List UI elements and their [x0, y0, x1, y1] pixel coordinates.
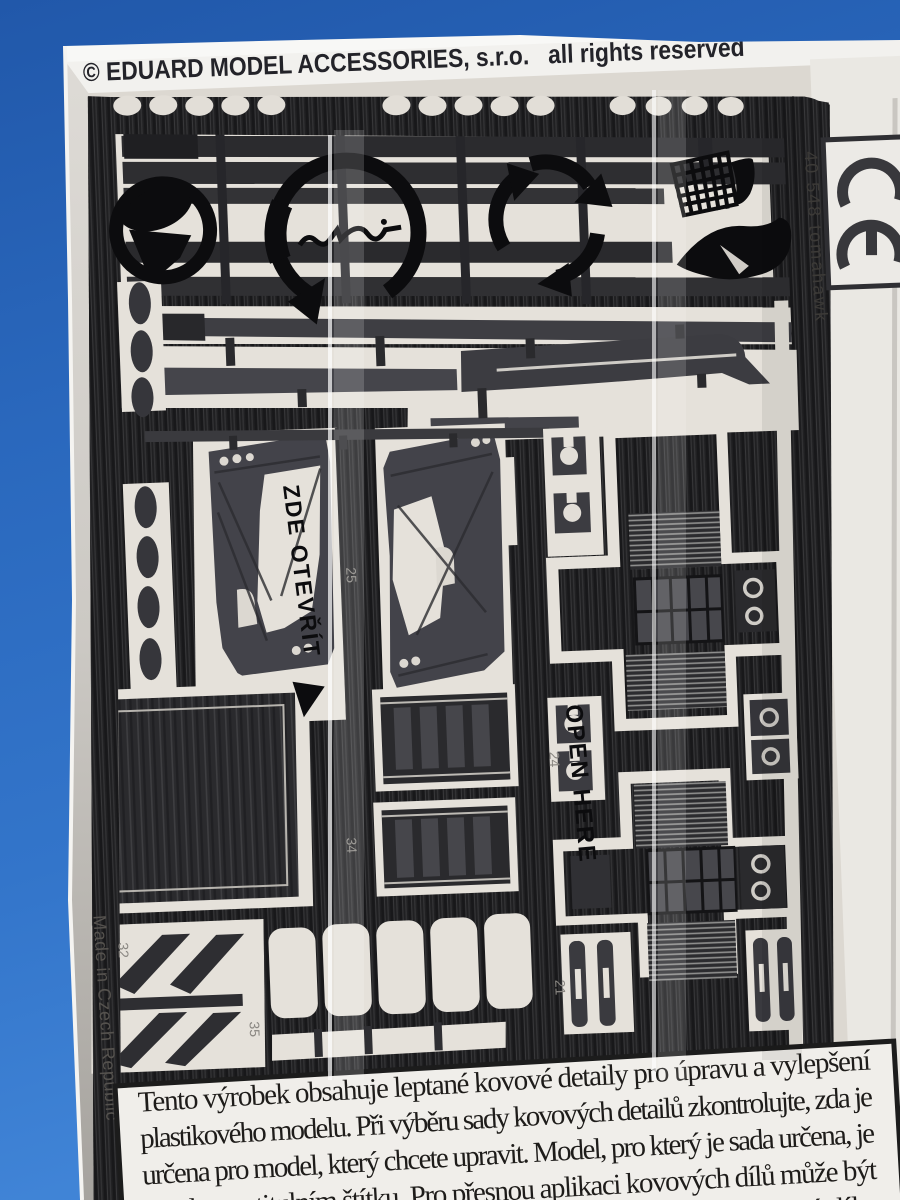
svg-text:35: 35 [247, 1021, 264, 1037]
svg-text:21: 21 [552, 979, 569, 995]
svg-text:24: 24 [546, 751, 563, 767]
svg-text:32: 32 [115, 942, 132, 958]
